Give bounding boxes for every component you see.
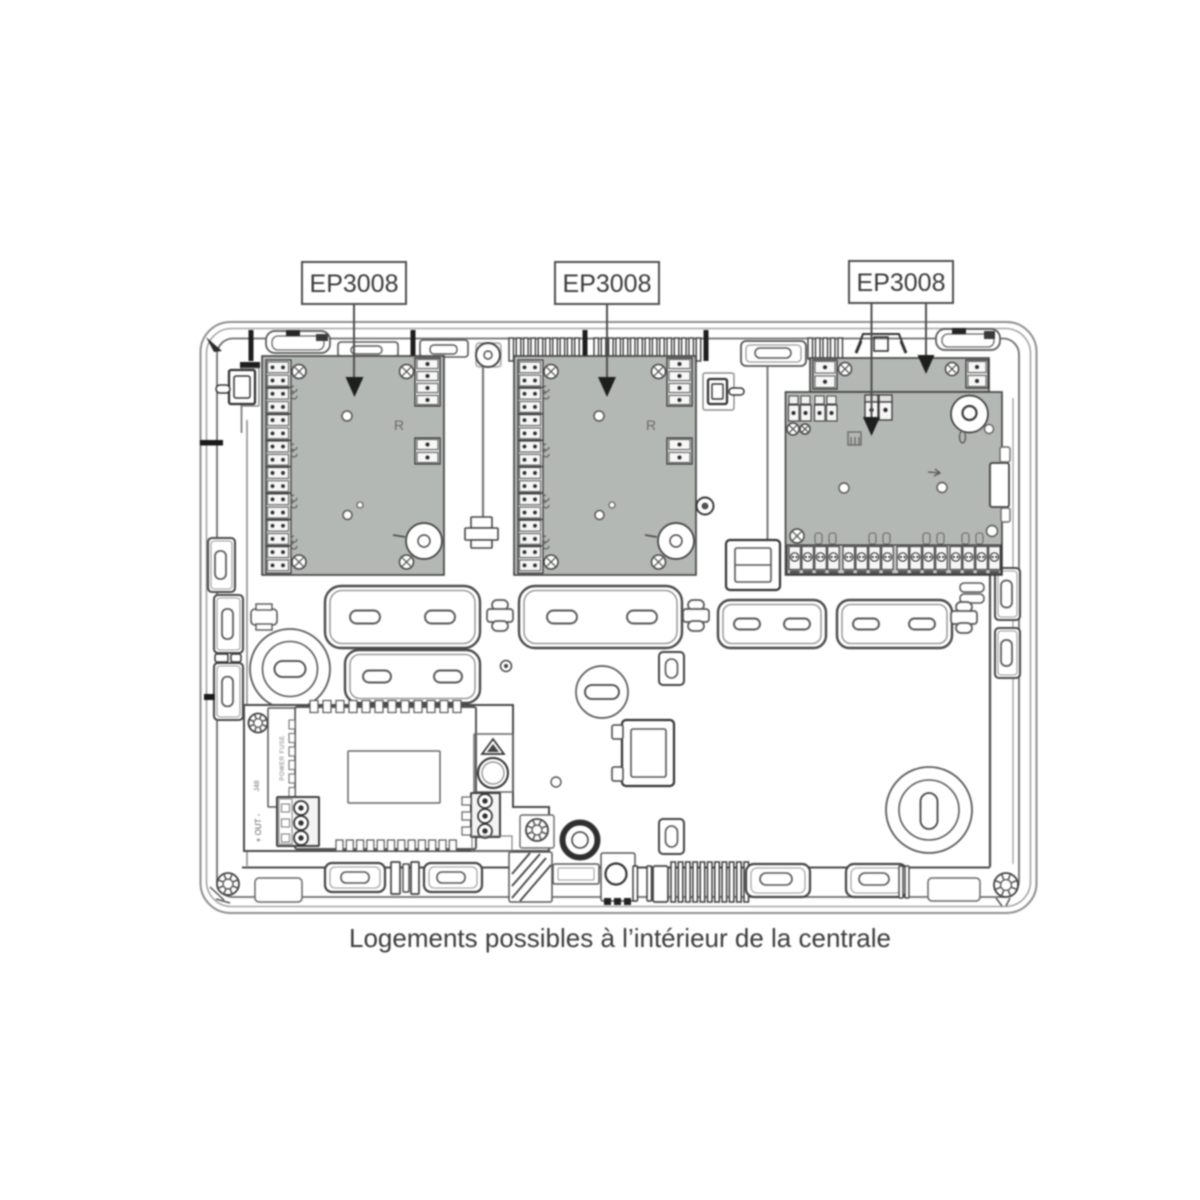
svg-text:R: R	[646, 417, 656, 433]
svg-text:Logements possibles à l’intéri: Logements possibles à l’intérieur de la …	[349, 923, 891, 953]
svg-text:EP3008: EP3008	[310, 270, 399, 298]
svg-text:POWER FUSE: POWER FUSE	[280, 735, 286, 780]
svg-text:EP3008: EP3008	[857, 269, 946, 297]
svg-text:J48: J48	[254, 780, 261, 791]
svg-text:R: R	[394, 417, 404, 433]
svg-text:EP3008: EP3008	[563, 270, 652, 298]
svg-text:+ OUT -: + OUT -	[254, 813, 263, 842]
